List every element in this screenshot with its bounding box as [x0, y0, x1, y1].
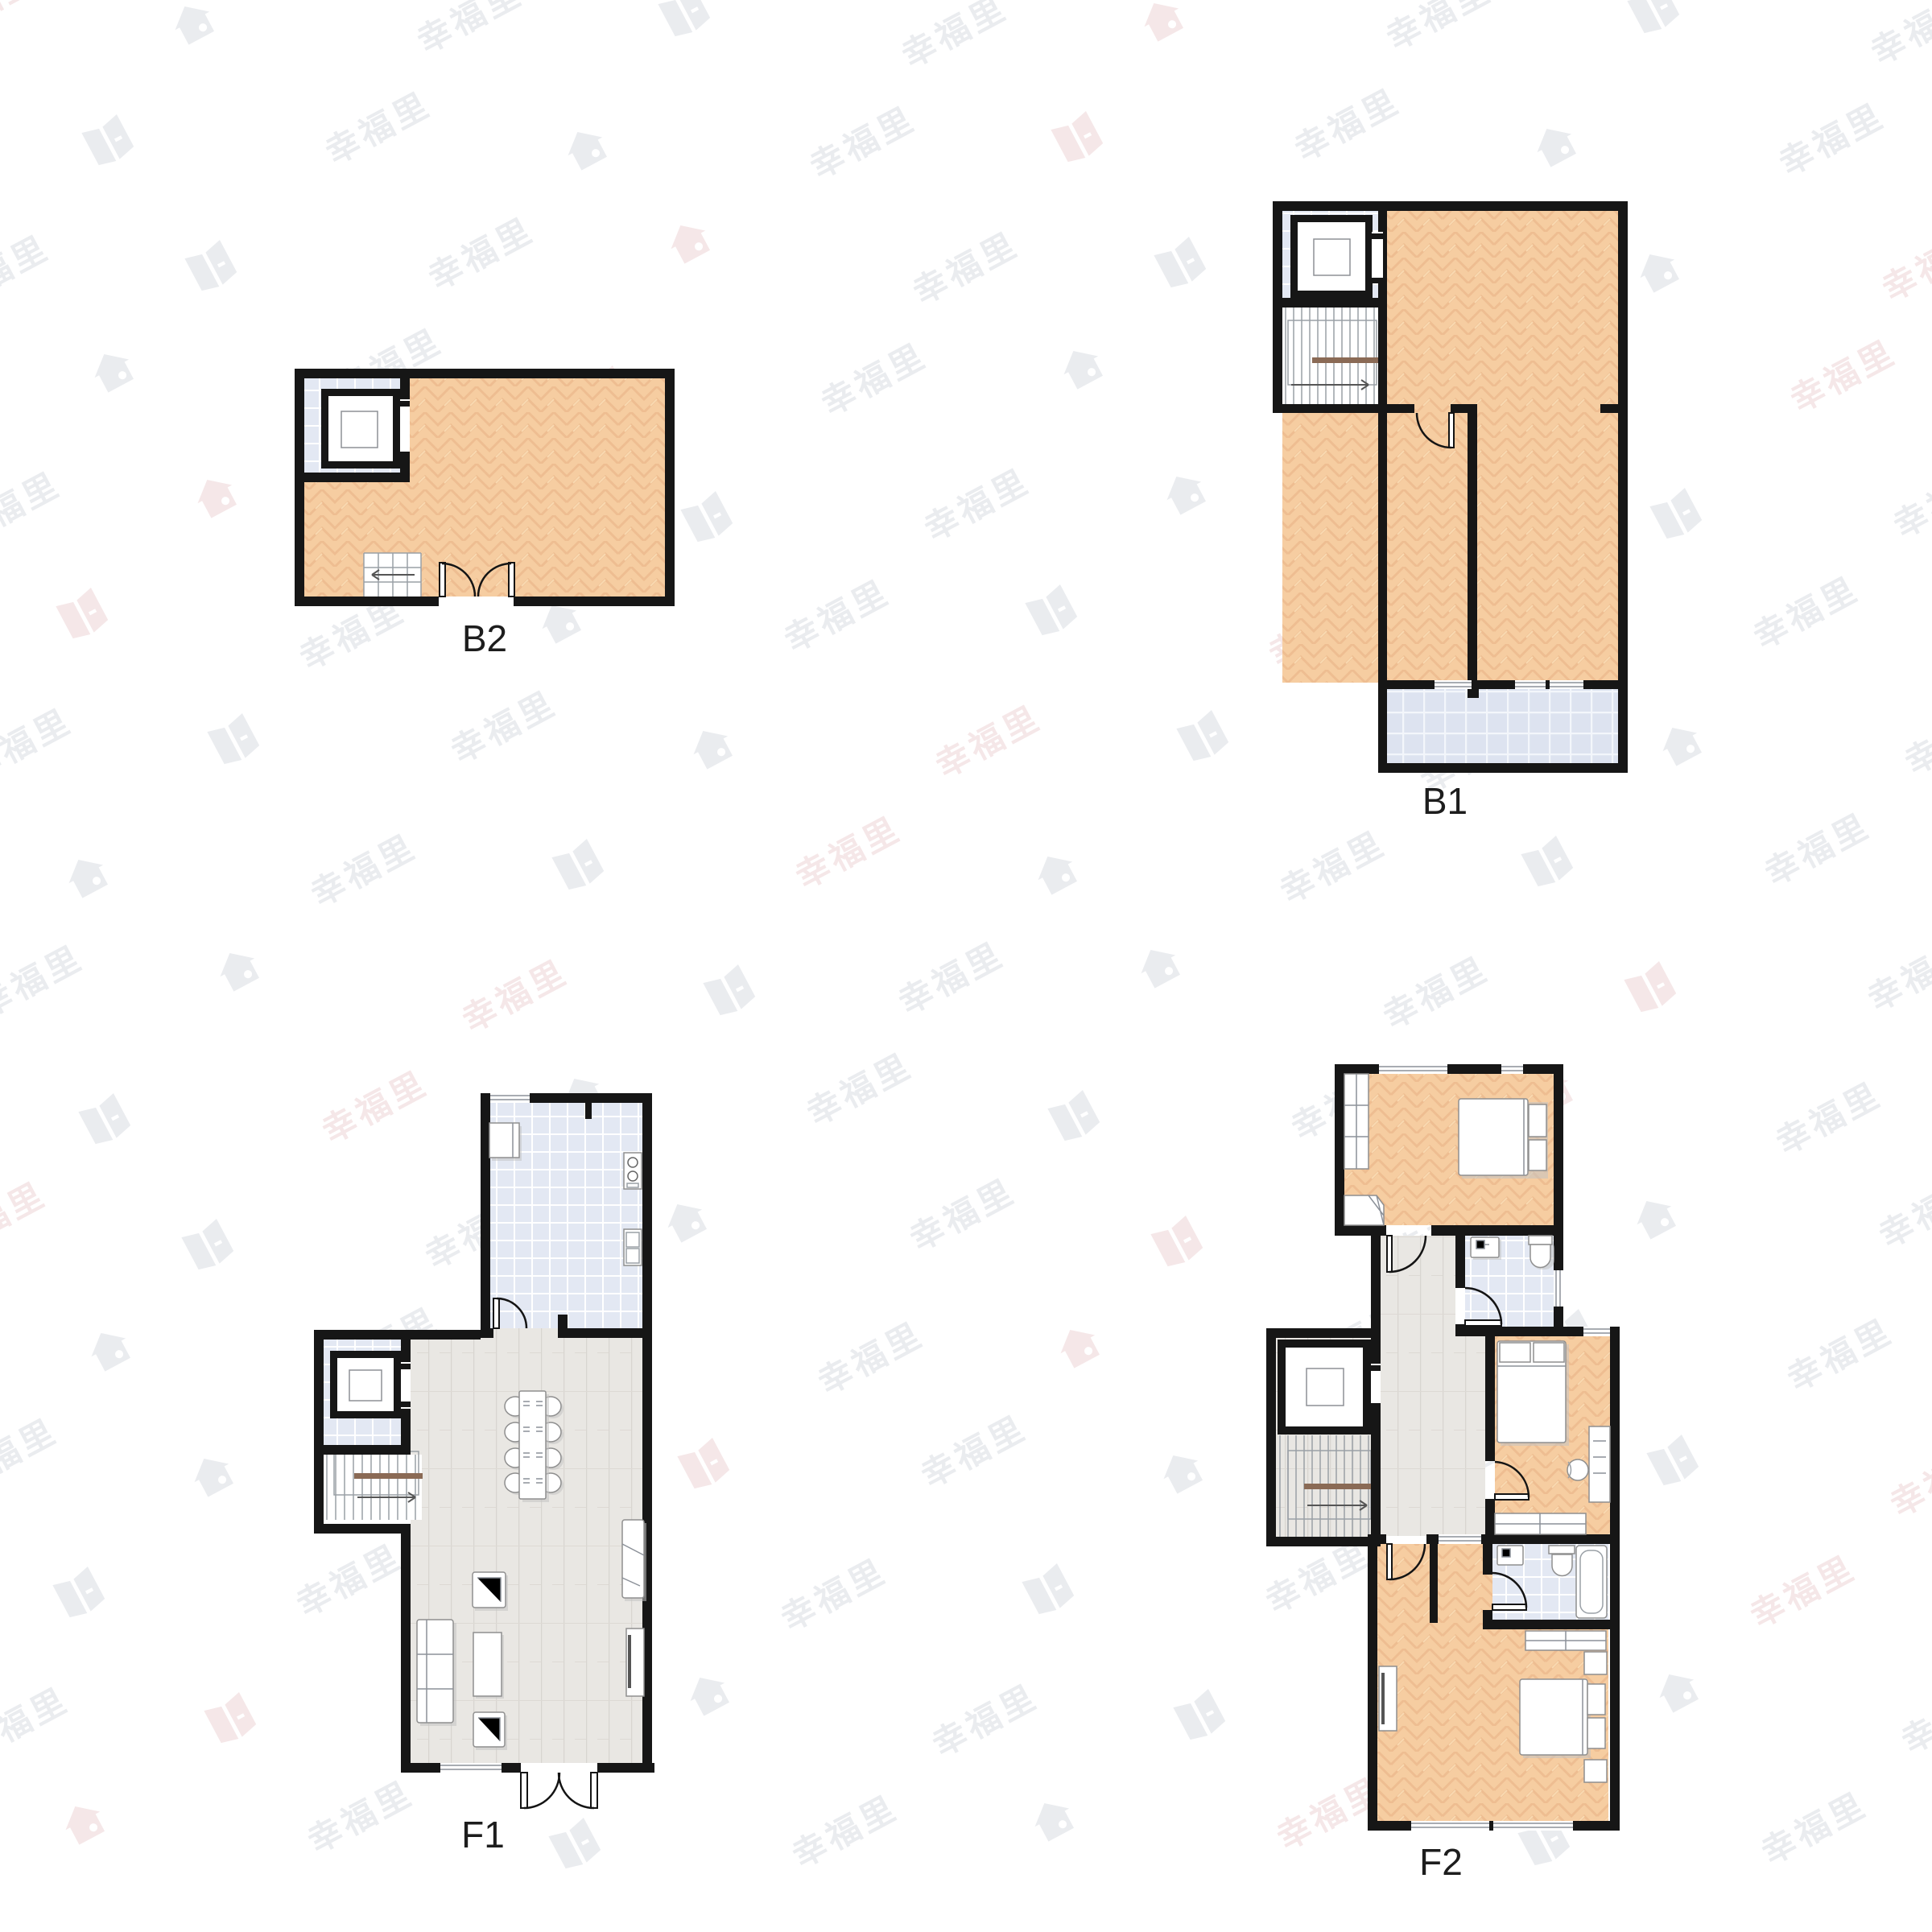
f1-stove — [624, 1153, 642, 1189]
b2-elevator-door — [400, 399, 410, 457]
f2-bedroom-top-window — [1379, 1064, 1447, 1074]
f2-desk-mid — [1589, 1426, 1610, 1502]
f2-bedroom-mid-window — [1583, 1327, 1610, 1336]
f2-wardrobe-bottom — [1525, 1631, 1606, 1650]
plan-label-f2: F2 — [1419, 1840, 1463, 1884]
f2-bathroom1-sink — [1471, 1237, 1501, 1260]
b2-elevator — [321, 389, 410, 469]
nightstand — [1584, 1652, 1607, 1674]
f1-tv-console — [626, 1629, 644, 1696]
plan-label-b1: B1 — [1422, 779, 1468, 823]
f2-tv-stand — [1379, 1666, 1397, 1731]
b1-elevator-door — [1372, 232, 1383, 283]
b1-elevator — [1290, 215, 1383, 298]
f2-hallway-floor-lower — [1381, 1328, 1485, 1536]
f2-bed-top — [1459, 1099, 1548, 1179]
f2-bathroom1-toilet — [1529, 1236, 1554, 1269]
f2-bathroom2-sink — [1497, 1546, 1523, 1565]
plan-label-f1: F1 — [461, 1813, 505, 1856]
f2-wardrobe-mid — [1495, 1513, 1586, 1534]
f1-armchair-top — [473, 1572, 508, 1611]
f1-kitchen-sink — [624, 1229, 642, 1265]
plan-b1 — [1273, 201, 1628, 773]
f1-fridge — [489, 1123, 522, 1161]
plan-f2 — [1266, 1064, 1620, 1831]
f1-sofa — [417, 1620, 456, 1726]
b1-balcony-tile-floor — [1387, 689, 1618, 763]
plan-label-b2: B2 — [462, 617, 507, 660]
f2-bathtub — [1576, 1546, 1607, 1618]
plan-f1 — [314, 1093, 654, 1808]
stair-rail — [1304, 1484, 1373, 1489]
f2-elevator — [1278, 1340, 1381, 1435]
plan-b2 — [295, 369, 675, 606]
f1-armchair-bottom — [473, 1712, 507, 1750]
f2-desk-chair — [1567, 1459, 1588, 1480]
floorplan-canvas: 幸福里幸福里幸福里幸福里幸福里幸福里幸福里幸福里幸福里幸福里幸福里幸福里幸福里幸… — [0, 0, 1932, 1932]
f2-bathroom1-window — [1554, 1270, 1563, 1307]
f1-coffee-table — [473, 1633, 504, 1699]
f1-living-window — [440, 1763, 502, 1773]
f2-bed-mid — [1497, 1341, 1569, 1446]
nightstand — [1584, 1760, 1607, 1782]
stair-rail — [354, 1473, 423, 1479]
b2-stairs — [364, 553, 421, 597]
f1-elevator — [330, 1351, 411, 1418]
stair-rail — [1312, 357, 1378, 363]
b1-stair-area — [1282, 308, 1378, 404]
f1-chaise — [622, 1520, 646, 1601]
f2-corner-desk — [1344, 1195, 1384, 1225]
f2-wardrobe-top — [1344, 1074, 1368, 1169]
floorplans-drawing — [0, 0, 1932, 1932]
f2-interior-window — [1439, 1534, 1481, 1544]
f1-entry-double-door — [521, 1763, 597, 1808]
f1-kitchen-window — [489, 1093, 530, 1103]
